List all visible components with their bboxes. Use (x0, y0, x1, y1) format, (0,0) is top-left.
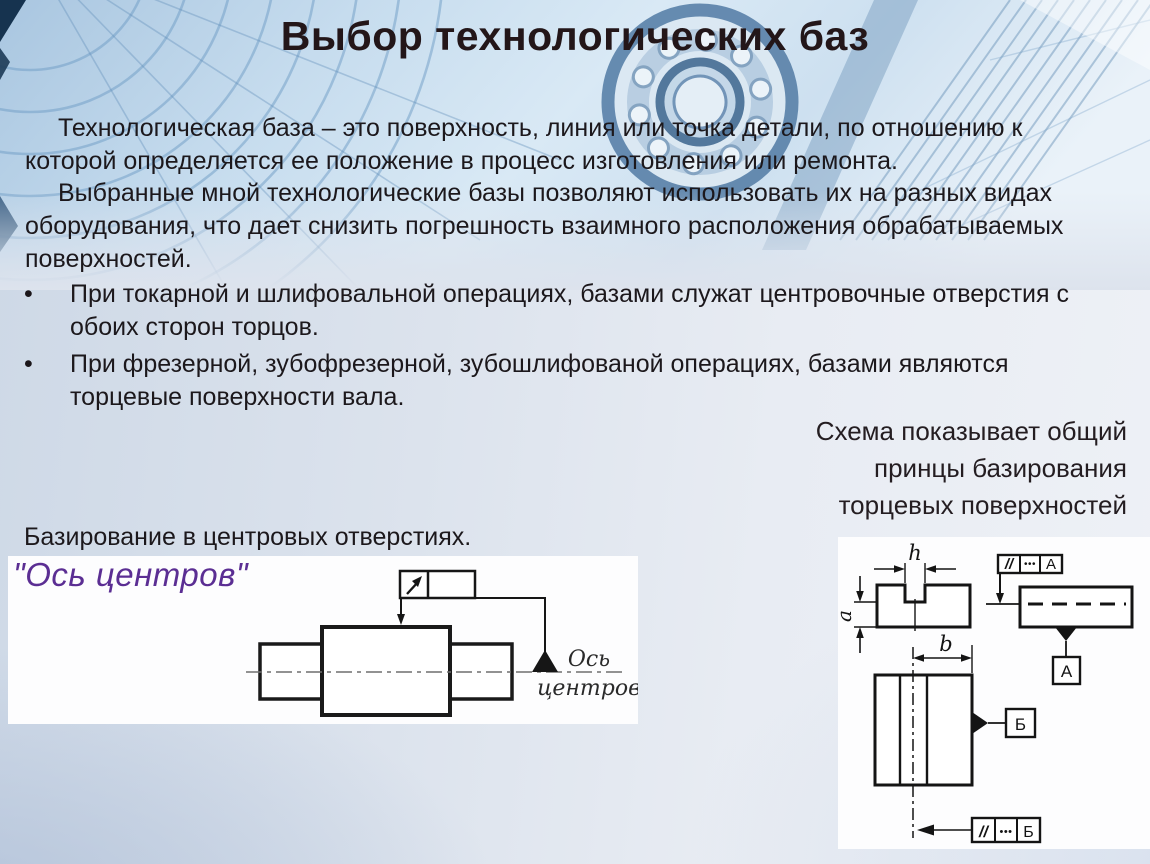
bullet-marker: • (24, 348, 33, 381)
bullet-text: При токарной и шлифовальной операциях, б… (70, 278, 1114, 344)
block-b (875, 675, 972, 785)
paragraph-definition: Технологическая база – это поверхность, … (25, 112, 1127, 178)
datum-triangle-a-icon (1055, 627, 1077, 641)
datum-triangle-icon (532, 650, 558, 672)
a-extension-lines (854, 602, 876, 627)
datum-triangle-b-icon (972, 712, 988, 734)
fcf-datum-letter: Б (1023, 824, 1034, 841)
datum-target-frame (400, 571, 475, 598)
dots-modifier-icon: ••• (999, 826, 1012, 838)
notched-block (877, 585, 970, 627)
dim-label-a: a (838, 610, 856, 622)
slide-title: Выбор технологических баз (0, 13, 1150, 60)
scheme-note: Схема показывает общий принцы базировани… (607, 413, 1127, 524)
fcf-datum-letter: А (1046, 556, 1056, 573)
right-figure-panel: h a // ••• А (838, 537, 1150, 849)
dim-label-h: h (908, 541, 922, 565)
fcf-frame-top: // ••• А (998, 555, 1062, 573)
datum-letter-a: А (1061, 662, 1073, 681)
leader-arrowhead (397, 614, 405, 625)
datum-letter-b: Б (1015, 715, 1026, 734)
stepped-shaft (260, 627, 512, 715)
fcf-leader-arrowhead (996, 593, 1004, 604)
shaft-block-a (1020, 587, 1132, 627)
h-dimension (874, 565, 956, 573)
h-extension-lines (905, 563, 925, 583)
figure-caption: Базирование в центровых отверстиях. (24, 523, 471, 552)
axis-of-centers-quote: "Ось центров" (13, 556, 248, 594)
dots-modifier-icon: ••• (1024, 559, 1036, 570)
bullet-marker: • (24, 278, 33, 311)
fcf-arrowhead (917, 825, 934, 836)
parallelism-icon: // (978, 824, 989, 841)
bullet-item-milling: • При фрезерной, зубофрезерной, зубошлиф… (24, 348, 1114, 414)
presentation-slide: Выбор технологических баз Технологическа… (0, 0, 1150, 864)
axis-label-bottom: центров (537, 676, 638, 701)
fcf-frame-bottom: // ••• Б (972, 818, 1040, 842)
bullet-text: При фрезерной, зубофрезерной, зубошлифов… (70, 348, 1114, 414)
datum-scheme-drawing: h a // ••• А (838, 537, 1150, 849)
left-figure-panel: "Ось центров" Ось (8, 556, 638, 724)
paragraph-bases: Выбранные мной технологические базы позв… (25, 177, 1127, 276)
a-dimension (856, 576, 864, 653)
dim-label-b: b (939, 632, 952, 656)
bullet-item-turning: • При токарной и шлифовальной операциях,… (24, 278, 1114, 344)
axis-label-top: Ось (568, 647, 610, 672)
